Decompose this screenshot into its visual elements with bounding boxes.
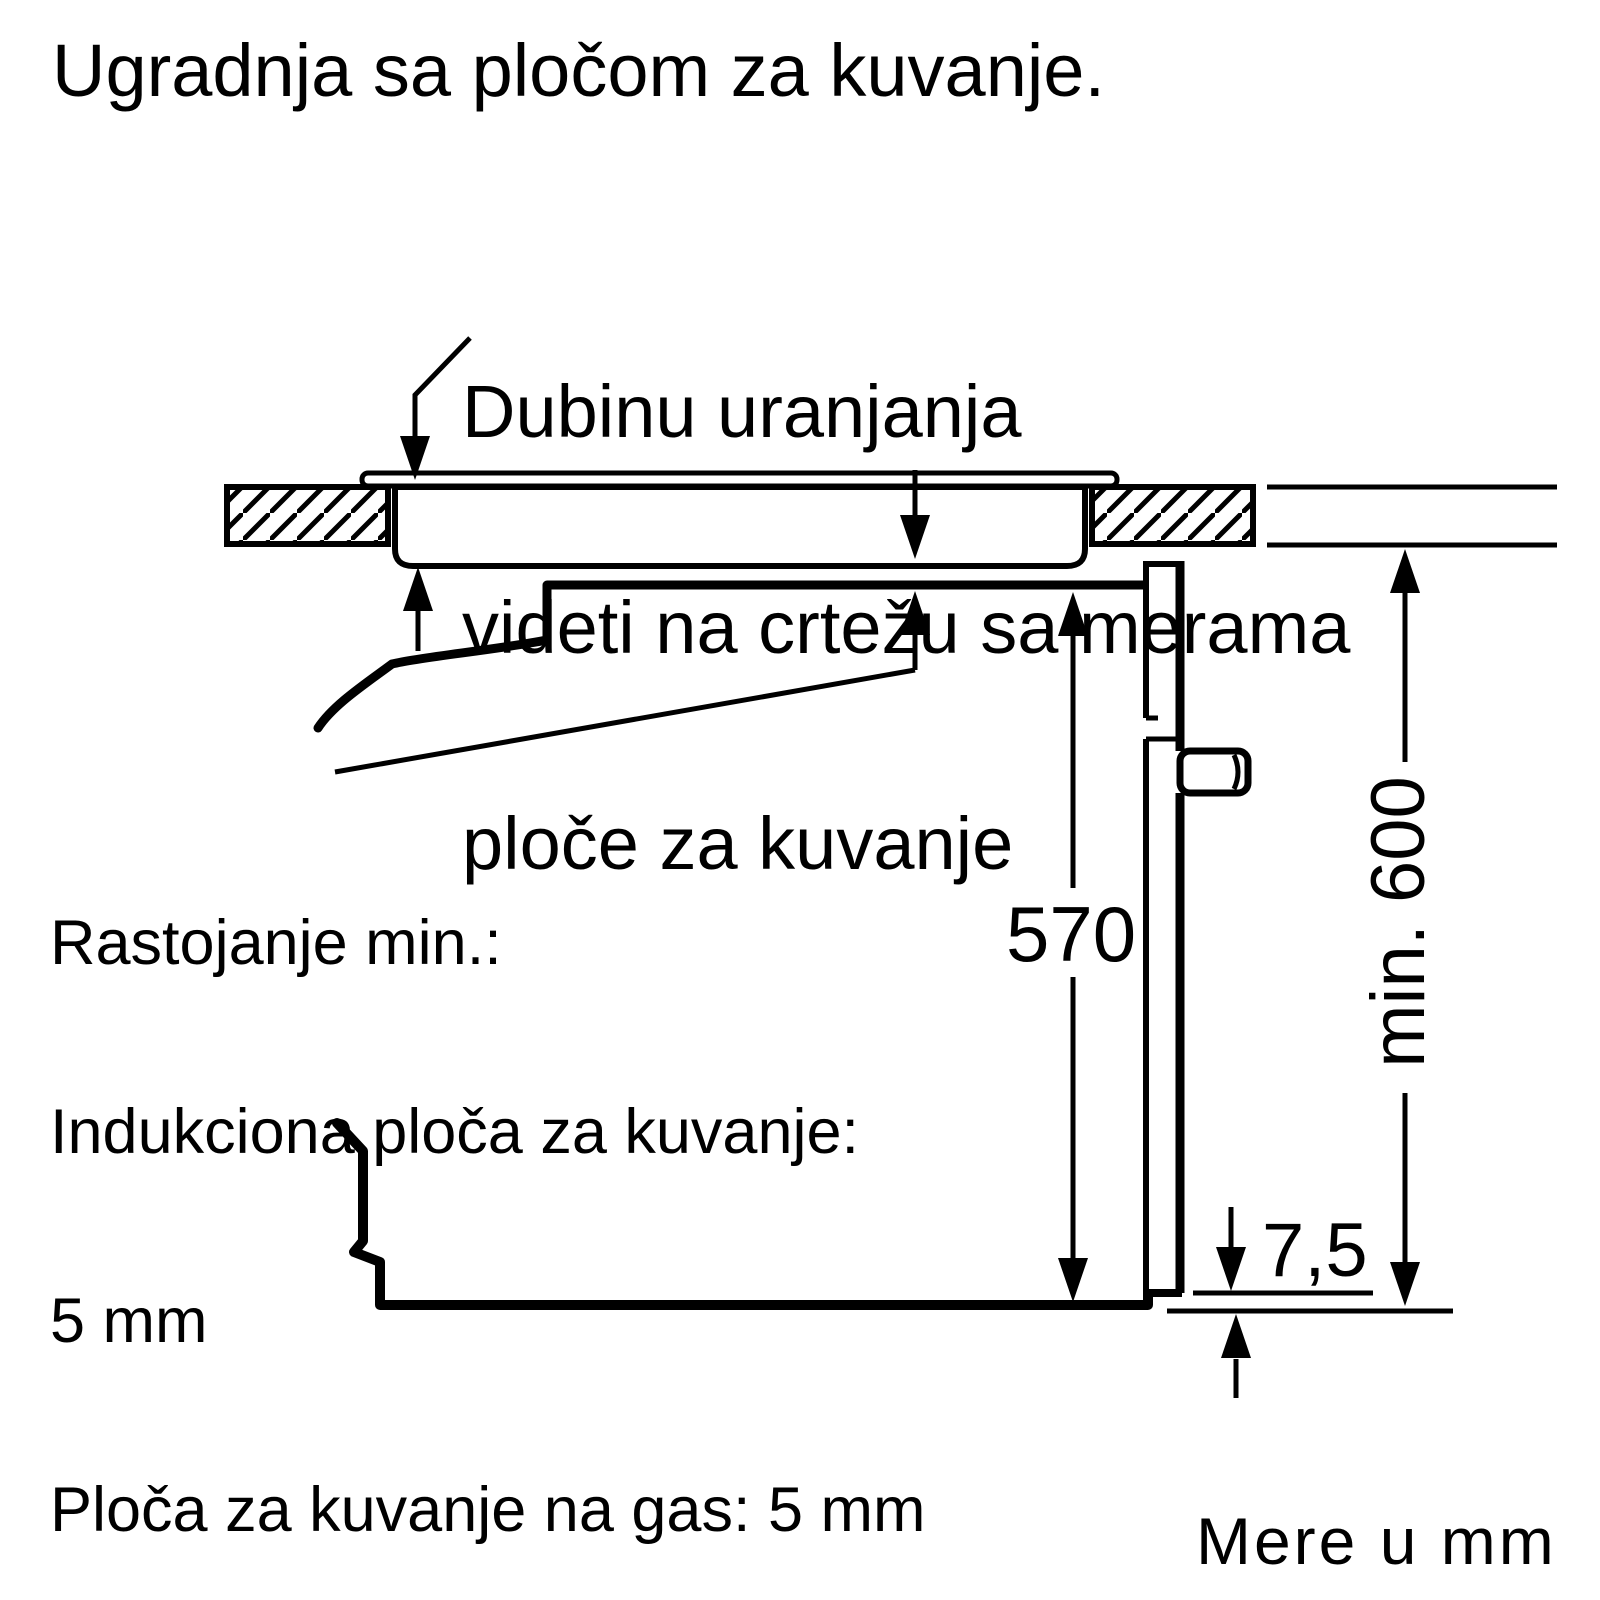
immersion-depth-callout-line2: videti na crtežu sa merama <box>462 592 1350 664</box>
units-note: Mere u mm <box>1196 1503 1557 1579</box>
min-distance-note-line1: Rastojanje min.: <box>50 912 1006 975</box>
min-distance-note-line2: Indukciona ploča za kuvanje: <box>50 1101 1006 1164</box>
min-distance-note-line4: Ploča za kuvanje na gas: 5 mm <box>50 1479 1006 1542</box>
min-distance-note-line3: 5 mm <box>50 1290 1006 1353</box>
page-title: Ugradnja sa pločom za kuvanje. <box>52 30 1105 111</box>
immersion-depth-leader-arrow <box>400 338 470 480</box>
dimension-7-5-label: 7,5 <box>1262 1213 1368 1289</box>
min-distance-note: Rastojanje min.: Indukciona ploča za kuv… <box>50 786 1006 1600</box>
immersion-depth-callout-line1: Dubinu uranjanja <box>462 376 1350 448</box>
dimension-570-label: 570 <box>1006 895 1136 973</box>
installation-diagram-page: Ugradnja sa pločom za kuvanje. Dubinu ur… <box>0 0 1600 1600</box>
countertop-left-section <box>227 487 388 544</box>
